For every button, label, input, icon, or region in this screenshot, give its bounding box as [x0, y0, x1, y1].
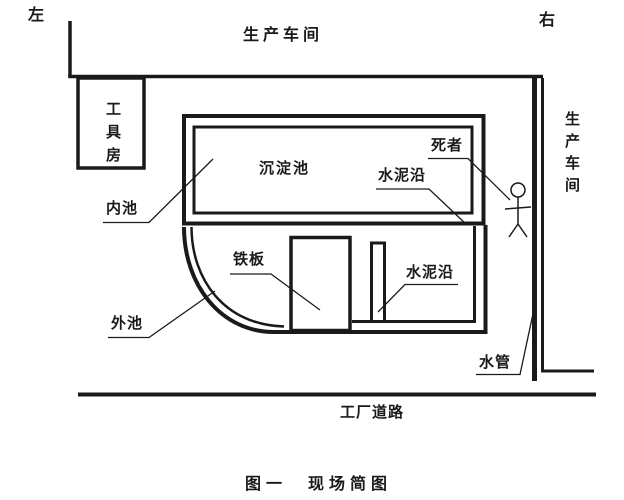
cement-edge-bottom-label: 水泥沿 — [406, 266, 454, 281]
leader-deceased — [428, 159, 510, 201]
inner-pool-label: 内池 — [106, 202, 138, 217]
orientation-left-label: 左 — [28, 8, 45, 24]
diagram-canvas — [0, 0, 624, 500]
callout-leaders — [103, 159, 534, 375]
tool-room-label: 工具房 — [104, 101, 119, 170]
right-workshop-label: 生产车间 — [563, 111, 578, 199]
sedimentation-pool-label: 沉淀池 — [259, 162, 310, 177]
iron-plate-box — [291, 238, 350, 331]
top-workshop-label: 生产车间 — [243, 28, 323, 44]
outer-pool-arc-outer — [184, 227, 274, 332]
outer-pool-arc-inner — [192, 227, 285, 327]
cement-edge-partition — [372, 243, 385, 321]
stick-figure — [505, 183, 531, 237]
factory-road-label: 工厂道路 — [340, 406, 404, 421]
water-pipe-label: 水管 — [479, 356, 511, 371]
orientation-right-label: 右 — [539, 13, 556, 29]
figure-caption: 图一 现场简图 — [245, 477, 392, 493]
leader-cement-edge-top — [376, 189, 467, 225]
cement-edge-top-label: 水泥沿 — [378, 169, 426, 184]
iron-plate-label: 铁板 — [233, 253, 265, 268]
deceased-label: 死者 — [431, 139, 463, 154]
outer-pool-label: 外池 — [111, 317, 143, 332]
leader-cement-edge-bottom — [378, 285, 458, 313]
scene-sketch-figure: 左 右 生产车间 工具房 生产车间 沉淀池 内池 水泥沿 死者 铁板 水泥沿 外… — [0, 0, 624, 500]
leader-iron-plate — [230, 274, 320, 310]
sedimentation-pool-upper — [184, 116, 484, 224]
